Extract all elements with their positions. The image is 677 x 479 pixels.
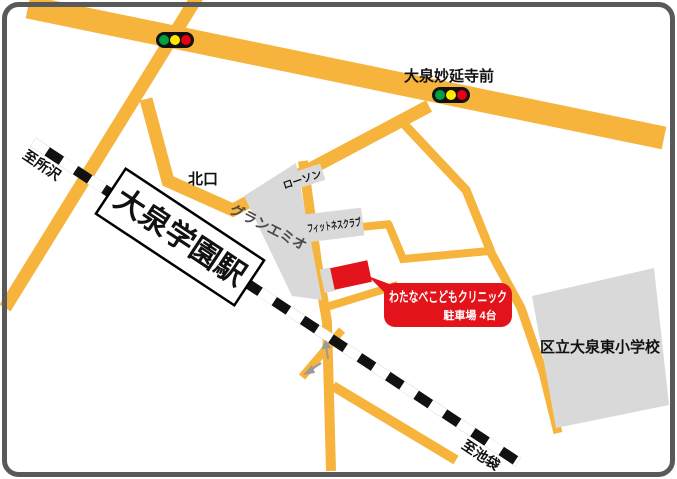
- clinic-access-map: ローソン フィットネスクラブ 大泉学園駅 大: [0, 0, 677, 479]
- map-canvas: ローソン フィットネスクラブ 大泉学園駅 大: [0, 0, 677, 479]
- signal-name-label: 大泉妙延寺前: [404, 67, 494, 85]
- one-way-street: [303, 161, 331, 471]
- clinic-name-label: わたなべこどもクリニック: [389, 289, 507, 305]
- branch-road-east: [404, 124, 491, 252]
- north-exit-label: 北口: [188, 171, 218, 188]
- rail-side-road: [333, 386, 456, 460]
- clinic-parking-label: 駐車場 4台: [443, 308, 496, 322]
- clinic-block-east-street: [388, 223, 489, 259]
- school-label: 区立大泉東小学校: [540, 338, 661, 356]
- traffic-light-icon: [432, 87, 470, 103]
- clinic-building-marker: [330, 260, 372, 289]
- traffic-light-icon: [156, 32, 194, 48]
